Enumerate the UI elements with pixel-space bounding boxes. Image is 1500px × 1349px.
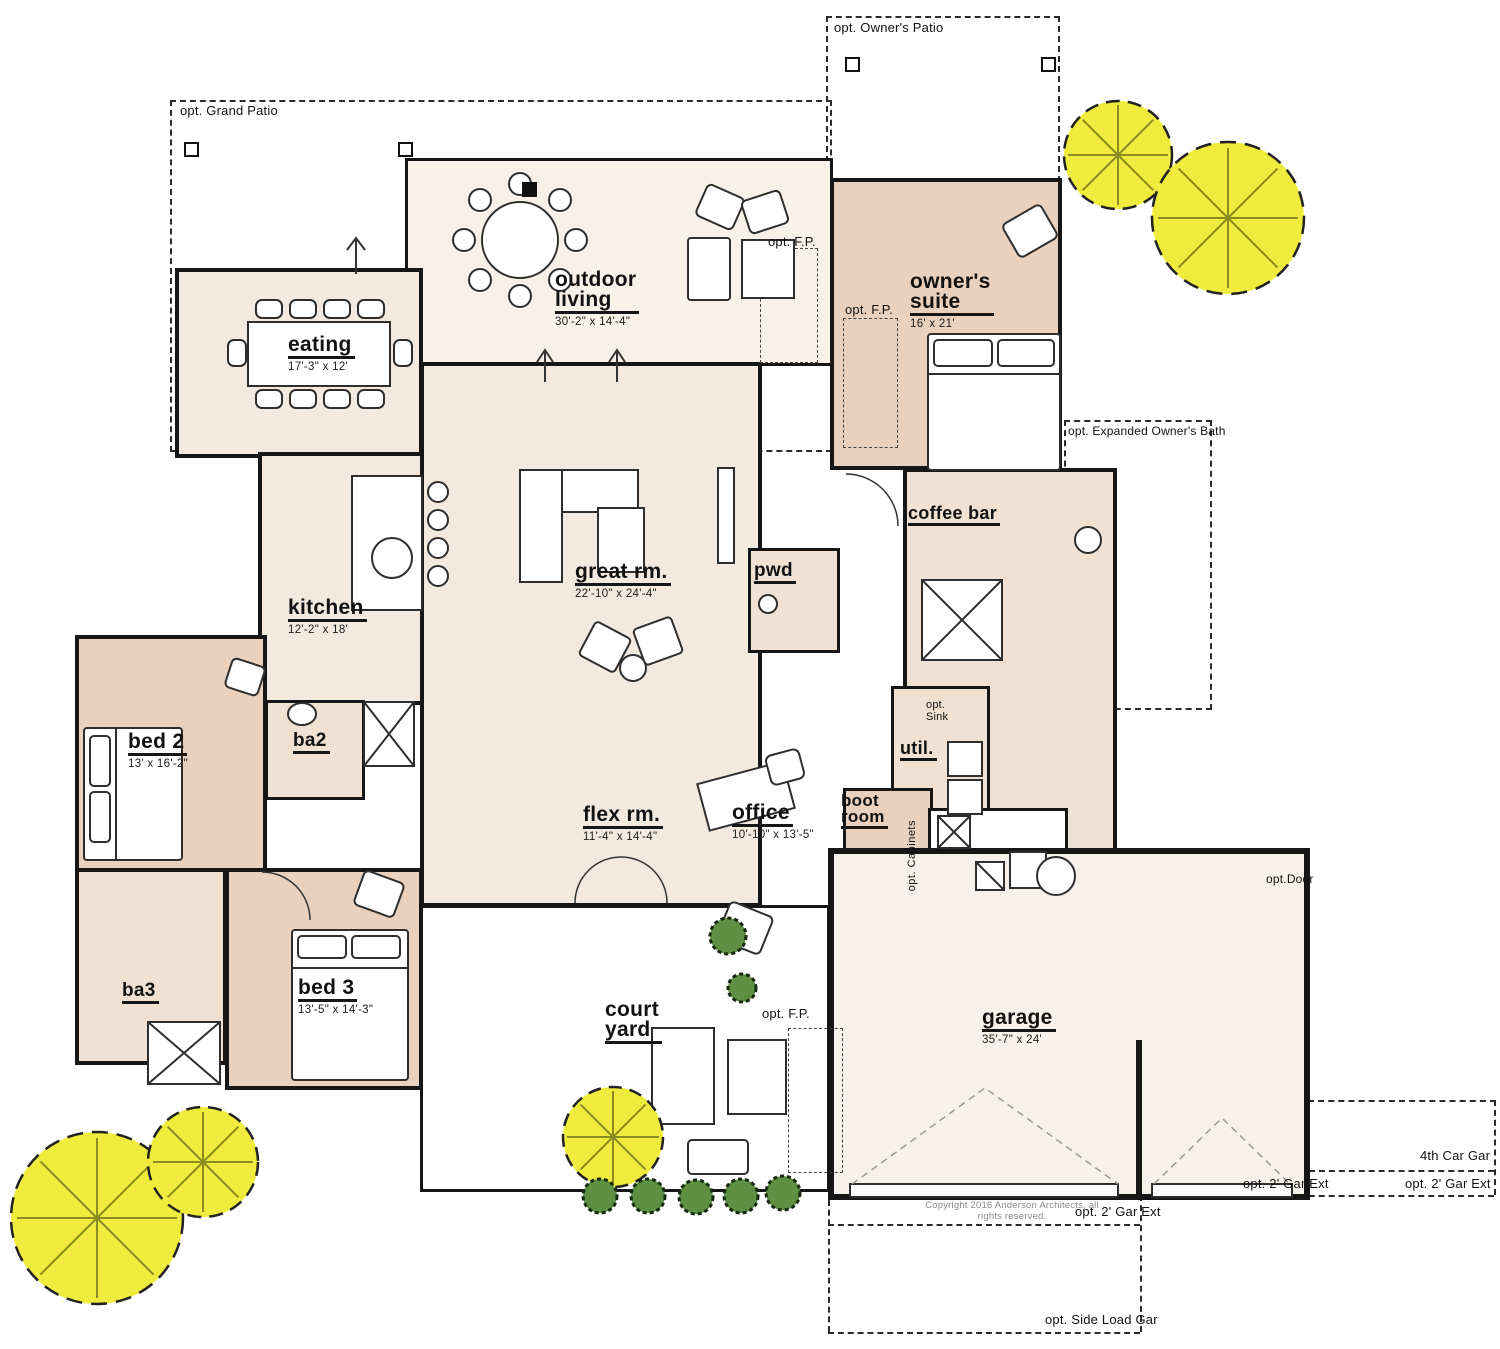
tree-icon	[1152, 142, 1304, 294]
opt-expanded-bath-label: opt. Expanded Owner's Bath	[1068, 424, 1226, 438]
room-dims: 13'-5" x 14'-3"	[298, 1004, 373, 1016]
room-name: great rm.	[575, 562, 671, 586]
room-dims: 10'-10" x 13'-5"	[732, 829, 814, 841]
room-kitchen	[258, 452, 424, 705]
room-name: owner's suite	[910, 272, 994, 316]
opt-gar-ext-label-1: opt. 2' Gar Ext	[1243, 1176, 1329, 1191]
room-name: ba2	[293, 732, 330, 754]
fourth-car-right-line	[1494, 1100, 1496, 1195]
pwd-label: pwd	[754, 562, 796, 584]
room-name: flex rm.	[583, 805, 663, 829]
room-dims: 22'-10" x 24'-4"	[575, 588, 671, 600]
garage-label: garage 35'-7" x 24'	[982, 1008, 1056, 1046]
ba3-label: ba3	[122, 982, 159, 1004]
fourth-car-gar-label: 4th Car Gar	[1420, 1148, 1490, 1163]
patio-post	[398, 142, 413, 157]
tree-icon	[148, 1107, 258, 1217]
opt-sink-label: opt. Sink	[926, 700, 948, 723]
tree-icon	[1064, 101, 1172, 209]
office-label: office 10'-10" x 13'-5"	[732, 803, 814, 841]
room-garage	[828, 848, 1310, 1200]
room-name: outdoor living	[555, 270, 639, 314]
opt-fp-label-1: opt. F.P.	[768, 234, 816, 249]
room-name: ba3	[122, 982, 159, 1004]
flex-rm-label: flex rm. 11'-4" x 14'-4"	[583, 805, 663, 843]
bed2-label: bed 2 13' x 16'-2"	[128, 732, 188, 770]
room-name: util.	[900, 740, 937, 761]
fourth-car-top-line	[1308, 1100, 1496, 1102]
opt-fp-label-2: opt. F.P.	[845, 302, 893, 317]
owners-patio-outline	[826, 16, 1060, 182]
great-rm-label: great rm. 22'-10" x 24'-4"	[575, 562, 671, 600]
opt-gar-ext-label-2: opt. 2' Gar Ext	[1405, 1176, 1491, 1191]
patio-post	[184, 142, 199, 157]
structural-post	[522, 182, 537, 197]
tree-icon	[11, 1132, 183, 1304]
garage-bay-divider	[1136, 1040, 1142, 1198]
court-yard-label: court yard	[605, 1000, 662, 1044]
boot-room-label: boot room	[841, 793, 888, 829]
room-name: office	[732, 803, 793, 827]
side-load-left-line	[828, 1200, 830, 1332]
patio-post	[1041, 57, 1056, 72]
room-name: boot room	[841, 793, 888, 829]
gar-ext-line-bottom	[828, 1224, 1140, 1226]
opt-cabinets-label: opt. Cabinets	[906, 820, 918, 891]
patio-post	[845, 57, 860, 72]
room-dims: 30'-2" x 14'-4"	[555, 316, 639, 328]
room-dims: 13' x 16'-2"	[128, 758, 188, 770]
room-dims: 16' x 21'	[910, 318, 994, 330]
room-name: coffee bar	[908, 505, 1000, 526]
eating-label: eating 17'-3" x 12'	[288, 335, 355, 373]
room-dims: 17'-3" x 12'	[288, 361, 355, 373]
room-name: bed 3	[298, 978, 357, 1002]
room-name: eating	[288, 335, 355, 359]
opt-side-load-label: opt. Side Load Gar	[1045, 1312, 1158, 1327]
coffee-bar-label: coffee bar	[908, 505, 1000, 526]
room-name: court yard	[605, 1000, 662, 1044]
floor-plan: outdoor living 30'-2" x 14'-4" owner's s…	[0, 0, 1500, 1349]
opt-fireplace-box-1	[760, 248, 818, 363]
side-load-bottom-line	[828, 1332, 1140, 1334]
util-label: util.	[900, 740, 937, 761]
room-name: garage	[982, 1008, 1056, 1032]
room-name: bed 2	[128, 732, 187, 756]
opt-owners-patio-label: opt. Owner's Patio	[834, 20, 943, 35]
room-dims: 35'-7" x 24'	[982, 1034, 1056, 1046]
opt-fp-label-court: opt. F.P.	[762, 1006, 810, 1021]
room-court-yard	[420, 905, 830, 1192]
room-name: pwd	[754, 562, 796, 584]
room-dims: 11'-4" x 14'-4"	[583, 831, 663, 843]
room-dims: 12'-2" x 18'	[288, 624, 367, 636]
copyright-text: Copyright 2016 Anderson Architects, all …	[912, 1200, 1112, 1222]
kitchen-label: kitchen 12'-2" x 18'	[288, 598, 367, 636]
opt-grand-patio-label: opt. Grand Patio	[180, 103, 278, 118]
room-ba3	[75, 868, 227, 1065]
outdoor-living-label: outdoor living 30'-2" x 14'-4"	[555, 270, 639, 328]
opt-door-label: opt.Door	[1266, 872, 1314, 886]
ba2-label: ba2	[293, 732, 330, 754]
owners-suite-label: owner's suite 16' x 21'	[910, 272, 994, 330]
opt-fireplace-box-court	[788, 1028, 843, 1173]
room-name: kitchen	[288, 598, 367, 622]
bed3-label: bed 3 13'-5" x 14'-3"	[298, 978, 373, 1016]
opt-fireplace-box-2	[843, 318, 898, 448]
